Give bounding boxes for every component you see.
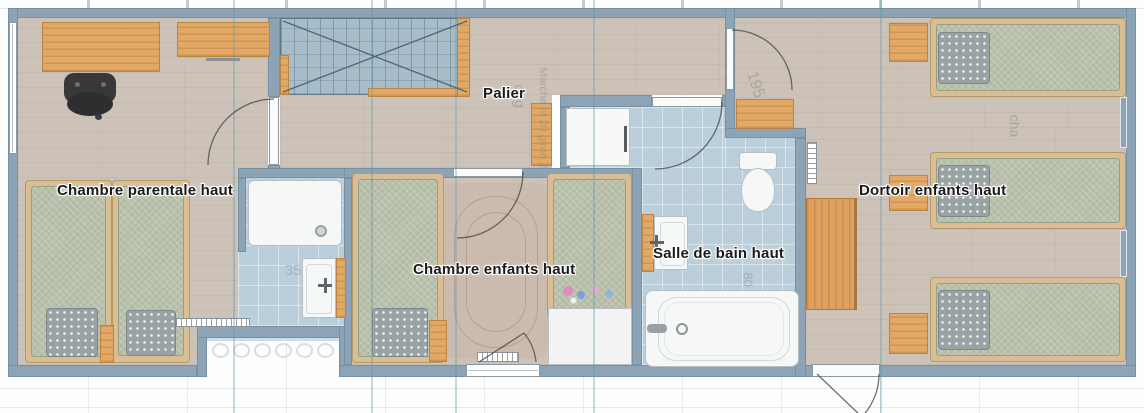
- grid-hline-1: [0, 388, 1144, 389]
- door-bathroom[interactable]: [652, 97, 722, 107]
- children-nightstand[interactable]: [429, 320, 447, 362]
- stair-newel-left: [280, 55, 289, 95]
- wall-shower-left: [238, 178, 246, 252]
- stair-newel-right: [457, 18, 470, 97]
- parental-bed-1-pillow: [46, 308, 98, 357]
- guide-line-2: [371, 0, 373, 413]
- parental-bed-divider: [100, 325, 114, 363]
- shower-faucet-v: [324, 278, 327, 293]
- chair-dot-right: [101, 82, 106, 87]
- dorm-wardrobe[interactable]: [806, 198, 857, 310]
- label-chambre-parentale-haut: Chambre parentale haut: [57, 182, 233, 199]
- toy-white: [570, 297, 577, 304]
- shower-drain: [315, 225, 327, 237]
- window-children-mullion: [468, 370, 538, 371]
- children-window-radiator[interactable]: [477, 352, 519, 362]
- door-parental[interactable]: [269, 97, 279, 165]
- window-right-wall-1[interactable]: [1120, 97, 1127, 148]
- chair-seat: [67, 92, 113, 116]
- window-right-wall-2[interactable]: [1120, 230, 1127, 277]
- annotation-35: 35: [278, 262, 308, 279]
- stair-stringer: [368, 88, 458, 97]
- chair-dot-left: [75, 82, 80, 87]
- label-dortoir-enfants-haut: Dortoir enfants haut: [859, 182, 1006, 199]
- toy-blue-1: [577, 291, 585, 299]
- baluster-5: [296, 343, 313, 358]
- baluster-1: [212, 343, 229, 358]
- door-children[interactable]: [453, 168, 523, 177]
- bathtub-drain: [676, 323, 688, 335]
- dorm-bed-3-pillow: [938, 290, 990, 350]
- floor-plan: deg Marche ht 20 giron 2 195 35 80 cha C…: [0, 0, 1144, 413]
- annotation-marche: Marche ht 20 giron 2: [537, 43, 549, 193]
- floor-palier-north: [470, 18, 725, 95]
- dorm-commode[interactable]: [736, 99, 794, 129]
- office-chair[interactable]: [64, 73, 116, 119]
- shower-basin-cabinet: [336, 258, 346, 318]
- wall-recess-top: [197, 326, 349, 338]
- wall-dorm-bath-horizontal: [725, 128, 806, 138]
- shower-basin-inner: [306, 264, 332, 314]
- baluster-3: [254, 343, 271, 358]
- children-bed-left-pillow: [372, 308, 428, 357]
- washing-machine[interactable]: [566, 108, 630, 166]
- guide-line-1: [233, 0, 235, 413]
- label-salle-de-bain-haut: Salle de bain haut: [653, 245, 784, 262]
- parental-guardrail[interactable]: [176, 318, 250, 327]
- window-left-wall[interactable]: [9, 22, 17, 154]
- baluster-4: [275, 343, 292, 358]
- dorm-nightstand-3[interactable]: [889, 313, 928, 354]
- recess-sill: [207, 338, 339, 341]
- desk-small[interactable]: [177, 22, 270, 57]
- dorm-nightstand-1[interactable]: [889, 23, 928, 62]
- children-dresser[interactable]: [548, 308, 632, 365]
- chair-caster: [95, 114, 102, 120]
- wall-bath-top: [560, 95, 652, 107]
- guide-line-5: [880, 0, 882, 413]
- window-left-mullion: [12, 24, 13, 152]
- wall-shower-top: [238, 168, 352, 178]
- baluster-6: [317, 343, 334, 358]
- door-dorm-south[interactable]: [812, 364, 880, 377]
- wall-right: [1126, 8, 1136, 377]
- toy-pink-1: [563, 286, 573, 296]
- door-dorm-entry[interactable]: [726, 28, 734, 90]
- dorm-bed-1-pillow: [938, 32, 990, 84]
- label-palier: Palier: [483, 85, 525, 102]
- label-chambre-enfants-haut: Chambre enfants haut: [413, 261, 575, 278]
- toy-blue-2: [605, 290, 613, 298]
- shower-tray[interactable]: [248, 180, 342, 246]
- desk-large[interactable]: [42, 22, 160, 72]
- grid-hline-2: [0, 407, 1144, 408]
- washing-machine-handle: [624, 126, 627, 152]
- staircase[interactable]: [280, 18, 470, 95]
- toilet-bowl: [741, 168, 775, 212]
- dorm-radiator[interactable]: [807, 142, 817, 184]
- annotation-80: 80: [741, 260, 756, 300]
- annotation-cha: cha: [1007, 106, 1023, 146]
- wall-top: [8, 8, 1136, 18]
- bathtub-faucet: [647, 324, 667, 333]
- parental-bed-2-pillow: [126, 310, 176, 356]
- guide-line-4: [593, 0, 595, 413]
- wall-children-right: [632, 168, 642, 365]
- baluster-2: [233, 343, 250, 358]
- guide-line-3: [455, 0, 457, 413]
- wall-bottom-west: [8, 365, 197, 377]
